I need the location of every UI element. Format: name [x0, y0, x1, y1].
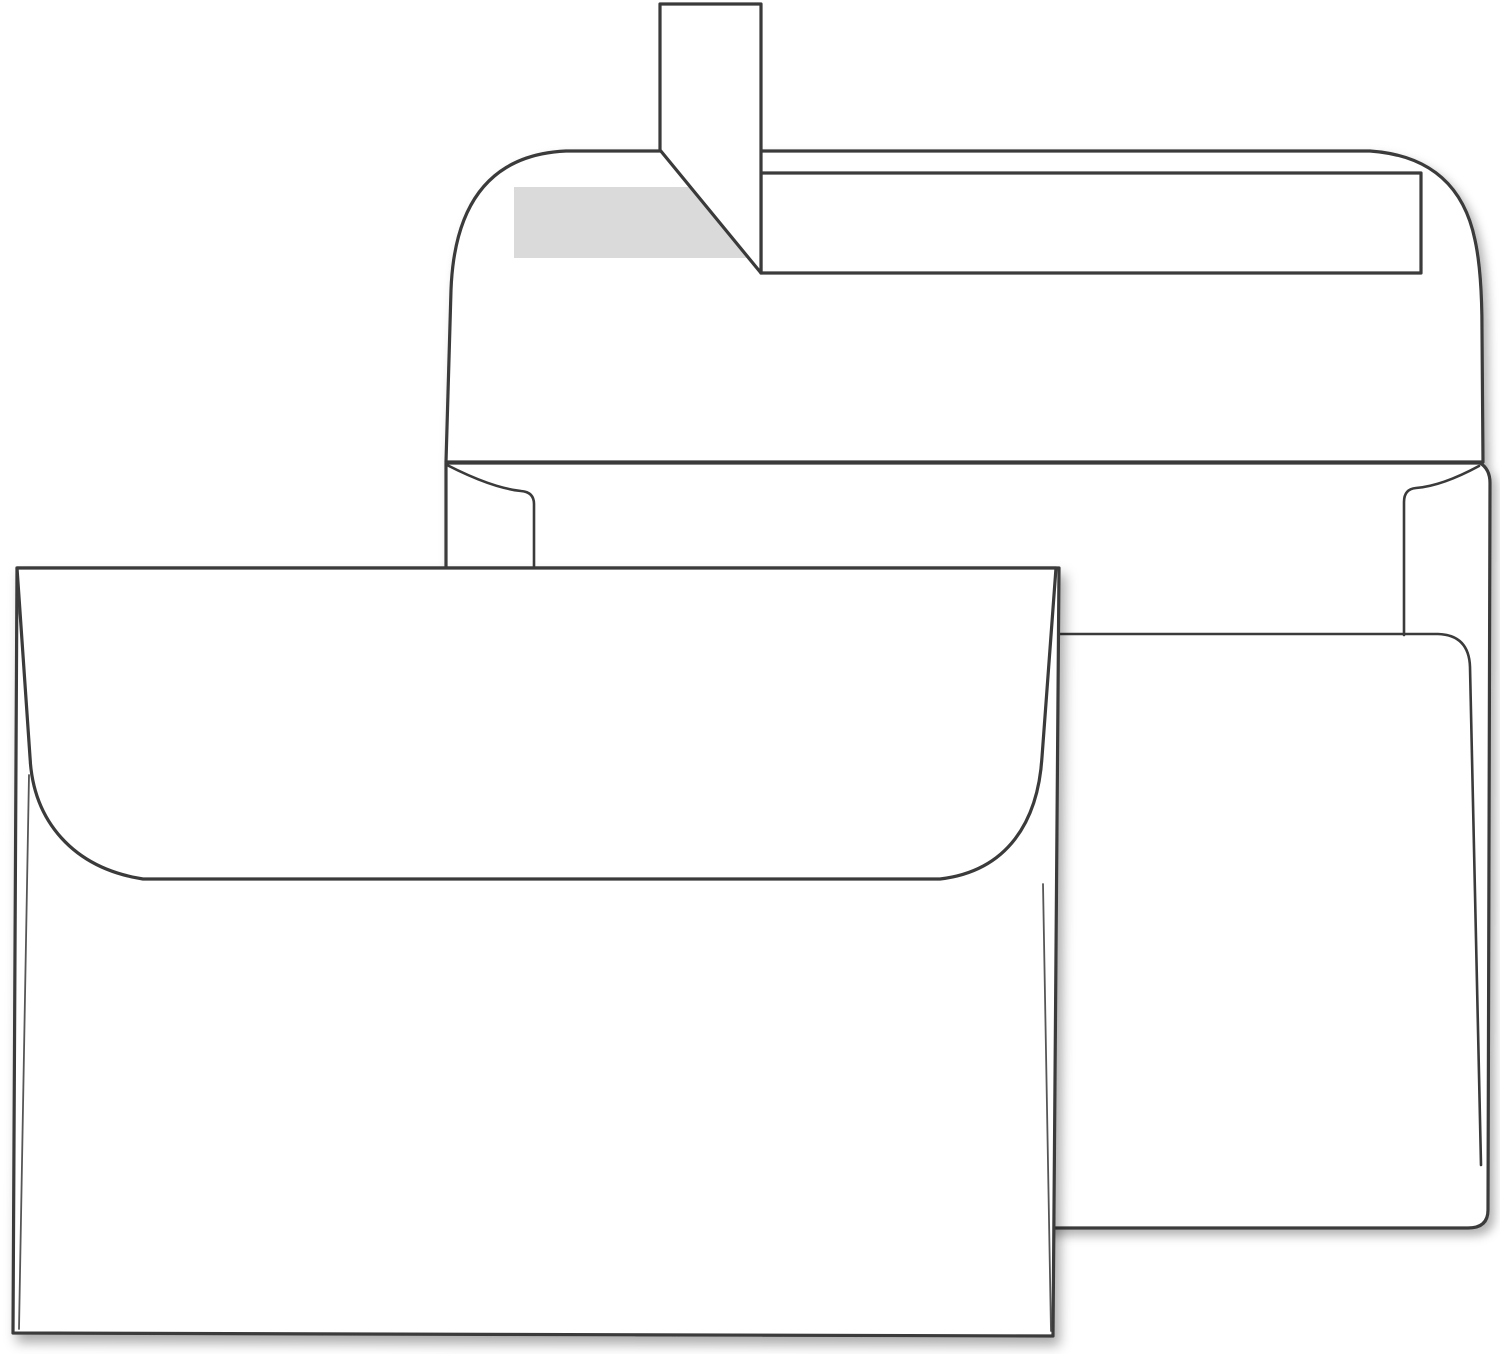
liner-band	[761, 173, 1421, 273]
envelope-product-image	[0, 0, 1500, 1354]
front-envelope	[13, 568, 1059, 1336]
front-envelope-closed-flap	[17, 568, 1056, 879]
envelopes-illustration	[0, 0, 1500, 1354]
